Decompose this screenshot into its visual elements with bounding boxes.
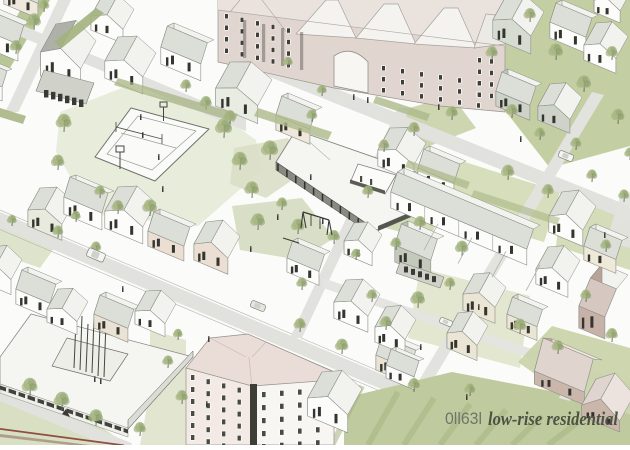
svg-text:low-rise residential: low-rise residential: [488, 409, 619, 430]
svg-text:0ll63l: 0ll63l: [445, 409, 482, 428]
